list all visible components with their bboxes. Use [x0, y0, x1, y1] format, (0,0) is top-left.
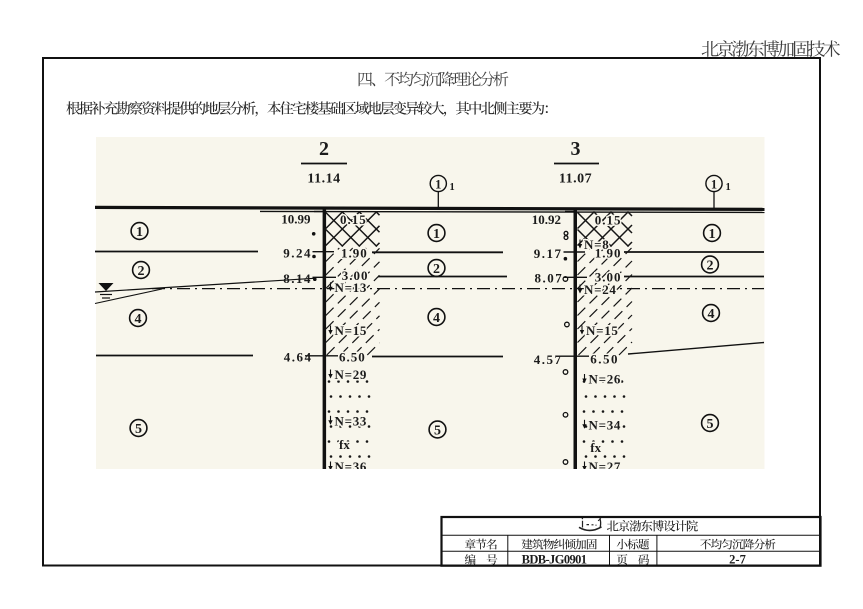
svg-text:3: 3: [571, 138, 581, 160]
svg-text:5: 5: [135, 422, 142, 437]
svg-text:fx: fx: [590, 440, 601, 455]
svg-text:2-7: 2-7: [729, 553, 746, 567]
svg-text:N=27: N=27: [589, 459, 622, 474]
svg-text:N=15: N=15: [586, 323, 619, 338]
svg-text:4: 4: [433, 311, 440, 326]
svg-text:N=15: N=15: [335, 323, 368, 338]
svg-text:6.50: 6.50: [590, 352, 619, 367]
svg-text:9.17: 9.17: [534, 246, 563, 261]
svg-text:N=33: N=33: [335, 413, 368, 428]
svg-text:N=13: N=13: [335, 280, 368, 295]
svg-text:2: 2: [707, 258, 714, 273]
svg-text:2: 2: [319, 138, 329, 160]
svg-text:1: 1: [435, 177, 441, 191]
svg-text:N=26: N=26: [589, 372, 622, 387]
svg-text:1: 1: [450, 182, 455, 193]
svg-text:11.07: 11.07: [559, 172, 592, 187]
svg-text:2: 2: [138, 264, 145, 279]
svg-text:1: 1: [711, 177, 717, 191]
svg-text:BDB-JG0901: BDB-JG0901: [522, 553, 587, 567]
svg-text:8.14: 8.14: [283, 271, 312, 286]
svg-text:4: 4: [135, 312, 142, 327]
svg-text:4.64: 4.64: [284, 350, 313, 365]
svg-text:10.92: 10.92: [532, 212, 561, 227]
svg-text:1: 1: [136, 225, 143, 240]
svg-text:fx: fx: [339, 437, 350, 452]
svg-text:2: 2: [433, 262, 440, 277]
svg-text:4.57: 4.57: [534, 352, 563, 367]
svg-text:8.07: 8.07: [535, 271, 564, 286]
svg-text:N=29: N=29: [335, 367, 368, 382]
svg-text:N=24: N=24: [584, 282, 617, 297]
svg-text:5: 5: [707, 417, 714, 432]
svg-text:N=34: N=34: [589, 417, 622, 432]
svg-text:1: 1: [709, 227, 716, 242]
svg-text:6.50: 6.50: [339, 350, 366, 365]
svg-text:0.15: 0.15: [340, 212, 367, 227]
svg-text:4: 4: [708, 307, 715, 322]
svg-text:1: 1: [433, 227, 440, 242]
svg-text:N=36: N=36: [335, 459, 368, 474]
svg-text:1.90: 1.90: [341, 245, 368, 260]
svg-text:11.14: 11.14: [307, 172, 340, 187]
svg-text:5: 5: [434, 423, 441, 438]
svg-text:1.90: 1.90: [595, 246, 622, 261]
svg-text:9.24: 9.24: [283, 245, 312, 260]
svg-text:0.15: 0.15: [595, 213, 622, 228]
svg-text:10.99: 10.99: [281, 212, 311, 227]
svg-text:1: 1: [726, 182, 731, 193]
